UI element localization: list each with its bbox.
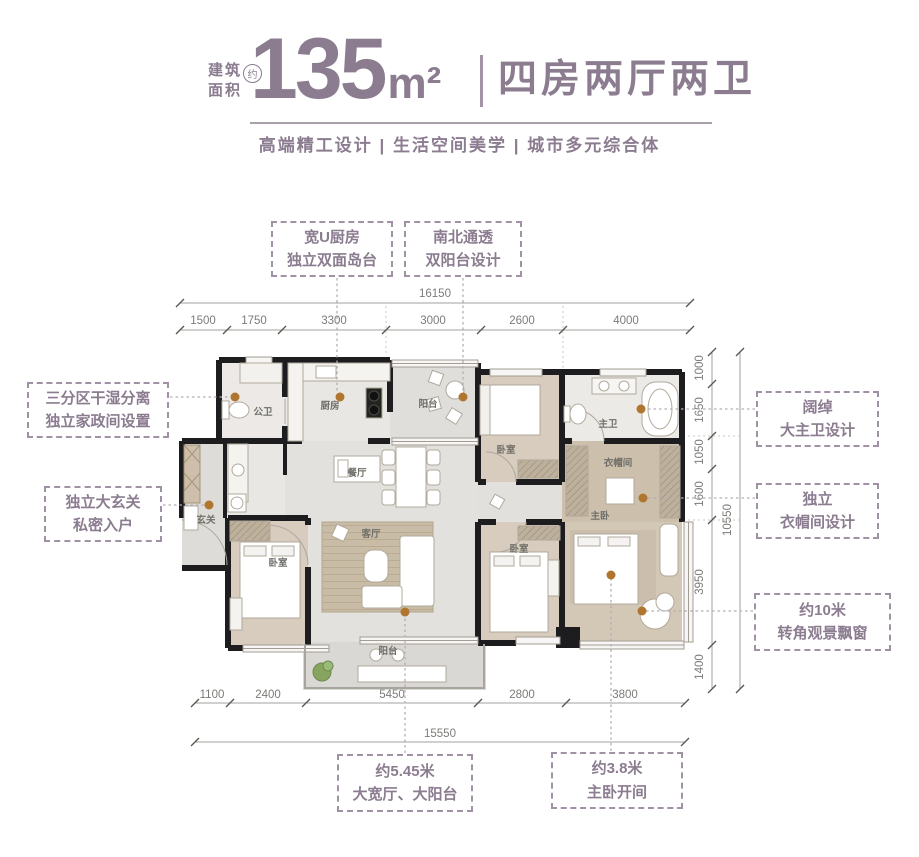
dim-top-seg-3: 3000 [420,315,446,327]
room-label-bedroom-south: 卧室 [509,543,529,555]
callout-master-bed-line2: 主卧开间 [555,781,679,804]
callout-foyer: 独立大玄关 私密入户 [44,486,162,542]
dim-right-seg-2: 1050 [694,439,706,465]
floorplan-page: 建筑 面积 约 135m² 四房两厅两卫 高端精工设计 | 生活空间美学 | 城… [0,0,919,857]
callout-bay-window-line2: 转角观景飘窗 [758,622,887,645]
dim-right-seg-5: 1400 [694,654,706,680]
room-label-kitchen: 厨房 [320,400,339,412]
callout-kitchen: 宽U厨房 独立双面岛台 [271,221,393,277]
leader-dot [205,501,214,510]
dim-top-seg-0: 1500 [190,315,216,327]
leader-dot [401,608,410,617]
dim-bottom-seg-1: 2400 [255,689,281,701]
callout-master-bed-line1: 约3.8米 [555,757,679,780]
dim-bottom-seg-3: 2800 [509,689,535,701]
dim-bottom-seg-0: 1100 [200,689,225,701]
room-label-dining: 餐厅 [346,467,367,479]
dim-top-seg-5: 4000 [613,315,639,327]
dim-right-total: 10550 [722,504,734,536]
dim-bottom-seg-4: 3800 [612,689,638,701]
callout-master-bath-line1: 阔绰 [760,396,875,419]
callout-master-bed: 约3.8米 主卧开间 [551,752,683,809]
callout-balcony-north-line2: 双阳台设计 [408,249,518,272]
callout-master-bath-line2: 大主卫设计 [760,419,875,442]
room-label-balcony-north: 阳台 [418,398,438,410]
callout-foyer-line2: 私密入户 [48,514,158,537]
callout-master-bath: 阔绰 大主卫设计 [756,391,879,447]
leader-dot [639,494,648,503]
laundry-fixtures [228,444,248,512]
leader-dot [336,393,345,402]
dim-top-seg-1: 1750 [241,315,267,327]
callout-kitchen-line2: 独立双面岛台 [275,249,389,272]
dimensions-right: 1000 1650 1050 1600 3950 1400 10550 [688,348,744,693]
room-label-master-bedroom: 主卧 [590,510,610,522]
room-label-foyer: 玄关 [196,514,216,526]
dim-bottom-seg-2: 5450 [379,689,405,701]
room-label-bedroom-north: 卧室 [496,444,516,456]
callout-kitchen-line1: 宽U厨房 [275,226,389,249]
dim-right-seg-0: 1000 [694,355,706,381]
callout-balcony-north-line1: 南北通透 [408,226,518,249]
callout-balcony-north: 南北通透 双阳台设计 [404,221,522,277]
leader-dot [459,393,468,402]
dimensions-bottom: 1100 2400 5450 2800 3800 15550 [191,689,689,746]
leader-dot [607,571,616,580]
callout-living-line2: 大宽厅、大阳台 [341,783,469,806]
leader-dot [637,405,646,414]
callout-foyer-line1: 独立大玄关 [48,491,158,514]
dim-bottom-total: 15550 [424,728,456,740]
leader-dot [231,393,240,402]
room-label-guest-bath: 公卫 [253,407,273,418]
dim-right-seg-4: 3950 [694,569,706,595]
dim-top-total: 16150 [419,288,451,300]
callout-living: 约5.45米 大宽厅、大阳台 [337,754,473,812]
callout-laundry-line2: 独立家政间设置 [31,410,165,433]
dim-top-seg-2: 3300 [321,315,347,327]
room-label-master-bath: 主卫 [598,418,618,430]
callout-cloakroom-line2: 衣帽间设计 [760,511,875,534]
callout-living-line1: 约5.45米 [341,760,469,783]
callout-bay-window-line1: 约10米 [758,599,887,622]
room-label-bedroom-west: 卧室 [268,557,288,569]
room-label-living: 客厅 [360,528,381,540]
callout-bay-window: 约10米 转角观景飘窗 [754,593,891,651]
room-label-balcony-south: 阳台 [378,645,398,657]
callout-cloakroom-line1: 独立 [760,488,875,511]
dim-top-seg-4: 2600 [509,315,535,327]
callout-laundry-line1: 三分区干湿分离 [31,387,165,410]
dim-right-seg-3: 1600 [694,481,706,507]
callout-cloakroom: 独立 衣帽间设计 [756,483,879,539]
dim-right-seg-1: 1650 [694,397,706,423]
leader-dot [638,607,647,616]
callout-laundry: 三分区干湿分离 独立家政间设置 [27,382,169,438]
room-label-cloakroom: 衣帽间 [604,457,633,469]
